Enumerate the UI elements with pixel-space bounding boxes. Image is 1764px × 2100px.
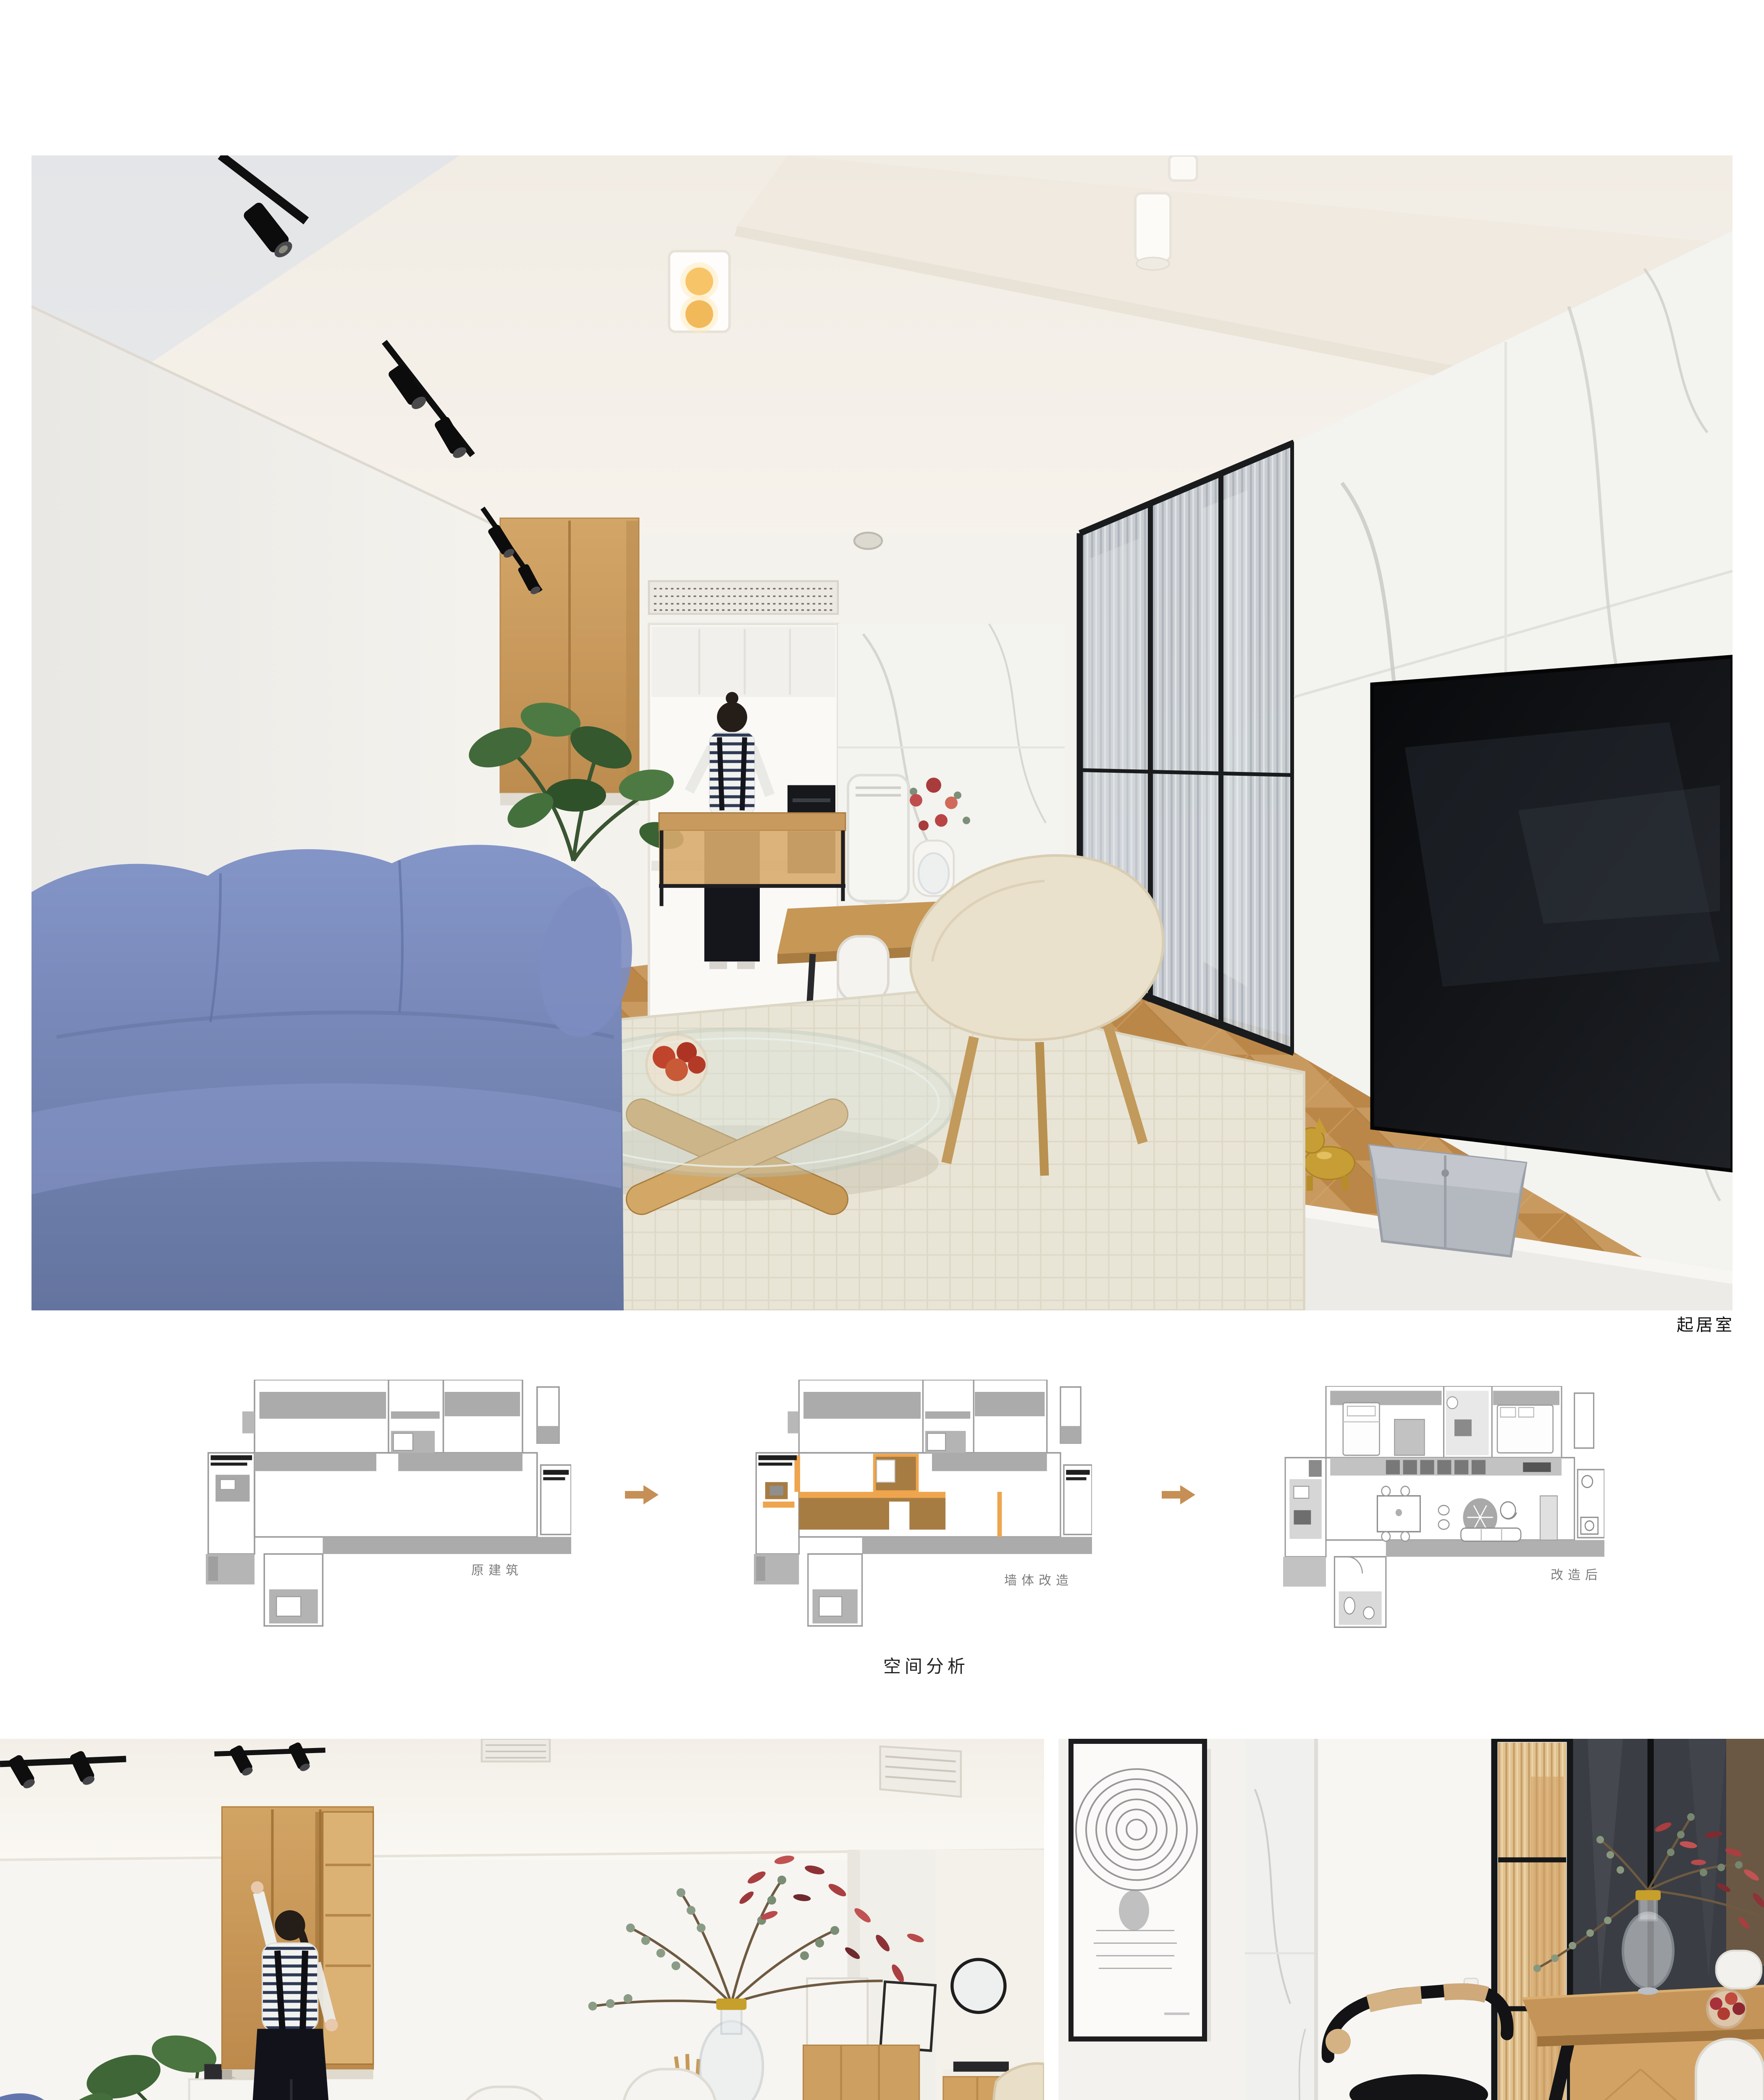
fruit-bowl bbox=[646, 1034, 707, 1095]
transform-arrow-icon bbox=[1162, 1484, 1195, 1505]
space-analysis-title: 空间分析 bbox=[853, 1652, 1000, 1678]
ac-vent bbox=[649, 581, 838, 614]
dining-detail-photo bbox=[1058, 1739, 1764, 2100]
framed-art bbox=[1071, 1741, 1211, 2042]
floor-plan-after bbox=[1283, 1386, 1604, 1630]
fruit-bowl bbox=[1707, 1990, 1745, 2028]
living-room-photo bbox=[31, 155, 1732, 1310]
felt-basket bbox=[1370, 1145, 1526, 1256]
box-downlight bbox=[669, 251, 730, 333]
plan-label-original: 原建筑 bbox=[395, 1560, 523, 1578]
floor-plan-original bbox=[206, 1380, 571, 1628]
plan-label-wall-renovation: 墙体改造 bbox=[945, 1570, 1073, 1588]
floor-plan-wall-renovation bbox=[754, 1380, 1092, 1628]
plan-label-after: 改造后 bbox=[1474, 1564, 1602, 1583]
presentation-board: 起居室 bbox=[0, 0, 1764, 2100]
dining-detail-scene bbox=[1058, 1739, 1764, 2100]
round-mirror bbox=[952, 1959, 1005, 2012]
air-purifier bbox=[848, 775, 908, 901]
dining-room-scene bbox=[0, 1739, 1044, 2100]
dining-room-photo bbox=[0, 1739, 1044, 2100]
transform-arrow-icon bbox=[625, 1484, 659, 1505]
living-room-scene bbox=[31, 155, 1732, 1310]
smoke-detector bbox=[854, 533, 882, 549]
television bbox=[1372, 657, 1732, 1171]
blue-sofa bbox=[31, 845, 641, 1310]
white-chair-partial bbox=[1716, 1950, 1761, 1988]
living-room-caption: 起居室 bbox=[1554, 1311, 1735, 1336]
marble-pilaster bbox=[1245, 1739, 1318, 2100]
